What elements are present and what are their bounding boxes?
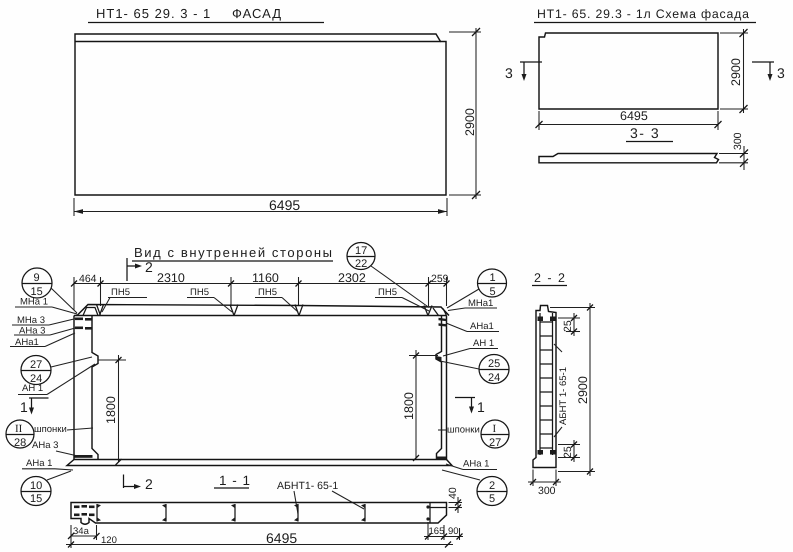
- svg-text:2: 2: [489, 480, 495, 492]
- svg-text:АН 1: АН 1: [22, 383, 43, 394]
- svg-text:I: I: [493, 423, 497, 435]
- svg-text:2900: 2900: [729, 58, 743, 86]
- svg-text:17: 17: [355, 245, 367, 257]
- svg-text:1: 1: [490, 272, 496, 284]
- svg-text:300: 300: [538, 485, 556, 497]
- svg-text:Вид с внутренней стороны: Вид с внутренней стороны: [134, 245, 334, 260]
- svg-text:2: 2: [145, 259, 153, 275]
- svg-text:6495: 6495: [266, 530, 297, 546]
- svg-text:АН 1: АН 1: [473, 338, 494, 349]
- svg-text:9: 9: [34, 272, 40, 284]
- svg-text:АБНТ 1- 65-1: АБНТ 1- 65-1: [558, 367, 569, 425]
- svg-text:24: 24: [488, 372, 500, 384]
- svg-text:АНа 1: АНа 1: [26, 458, 52, 469]
- svg-text:2302: 2302: [338, 271, 366, 285]
- svg-text:НТ1- 65. 29.3 - 1л Схема фасад: НТ1- 65. 29.3 - 1л Схема фасада: [537, 7, 750, 21]
- svg-text:НТ1- 65 29. 3 - 1: НТ1- 65 29. 3 - 1: [96, 6, 211, 21]
- svg-text:25: 25: [562, 446, 574, 458]
- svg-text:МНа1: МНа1: [468, 298, 493, 309]
- svg-text:ФАСАД: ФАСАД: [232, 6, 282, 21]
- svg-text:3: 3: [777, 65, 785, 81]
- svg-text:10: 10: [30, 480, 42, 492]
- svg-text:25: 25: [562, 320, 574, 332]
- svg-text:6495: 6495: [269, 197, 300, 213]
- svg-text:1 - 1: 1 - 1: [219, 473, 251, 488]
- svg-text:6495: 6495: [620, 109, 648, 123]
- svg-text:МНа 1: МНа 1: [20, 297, 48, 308]
- svg-text:34а: 34а: [73, 526, 90, 537]
- svg-text:2900: 2900: [463, 108, 477, 136]
- svg-text:АБНТ1- 65-1: АБНТ1- 65-1: [277, 480, 338, 492]
- svg-text:3- 3: 3- 3: [630, 125, 660, 141]
- svg-text:АНа 3: АНа 3: [32, 440, 58, 451]
- svg-text:шпонки: шпонки: [34, 424, 67, 435]
- svg-text:3: 3: [505, 65, 513, 81]
- svg-text:2310: 2310: [157, 271, 185, 285]
- svg-text:1: 1: [20, 399, 28, 415]
- svg-text:5: 5: [490, 286, 496, 298]
- svg-text:1: 1: [477, 399, 485, 415]
- svg-text:АНа1: АНа1: [470, 321, 494, 332]
- svg-text:МНа 3: МНа 3: [17, 315, 45, 326]
- svg-text:5: 5: [489, 493, 495, 505]
- svg-text:28: 28: [14, 437, 26, 449]
- svg-text:шпонки: шпонки: [447, 425, 480, 436]
- svg-text:ПН5: ПН5: [258, 287, 277, 298]
- svg-text:II: II: [15, 423, 23, 435]
- svg-text:1800: 1800: [104, 396, 118, 424]
- svg-text:АНа 1: АНа 1: [463, 459, 489, 470]
- svg-text:165: 165: [429, 526, 445, 537]
- svg-text:464: 464: [79, 273, 97, 285]
- svg-text:ПН5: ПН5: [111, 287, 130, 298]
- svg-text:300: 300: [732, 132, 744, 150]
- svg-text:22: 22: [355, 258, 367, 270]
- svg-text:1800: 1800: [402, 392, 416, 420]
- svg-text:27: 27: [489, 437, 501, 449]
- svg-text:1160: 1160: [252, 271, 279, 285]
- svg-text:27: 27: [30, 359, 42, 371]
- svg-text:ПН5: ПН5: [378, 287, 397, 298]
- svg-text:120: 120: [101, 535, 117, 546]
- svg-text:2 - 2: 2 - 2: [534, 271, 567, 285]
- svg-text:2900: 2900: [576, 376, 590, 404]
- svg-text:15: 15: [30, 493, 42, 505]
- svg-text:90: 90: [448, 526, 459, 537]
- svg-text:259: 259: [431, 273, 449, 285]
- svg-text:25: 25: [488, 358, 500, 370]
- svg-text:40: 40: [447, 487, 459, 499]
- svg-text:ПН5: ПН5: [190, 287, 209, 298]
- svg-text:2: 2: [145, 476, 153, 492]
